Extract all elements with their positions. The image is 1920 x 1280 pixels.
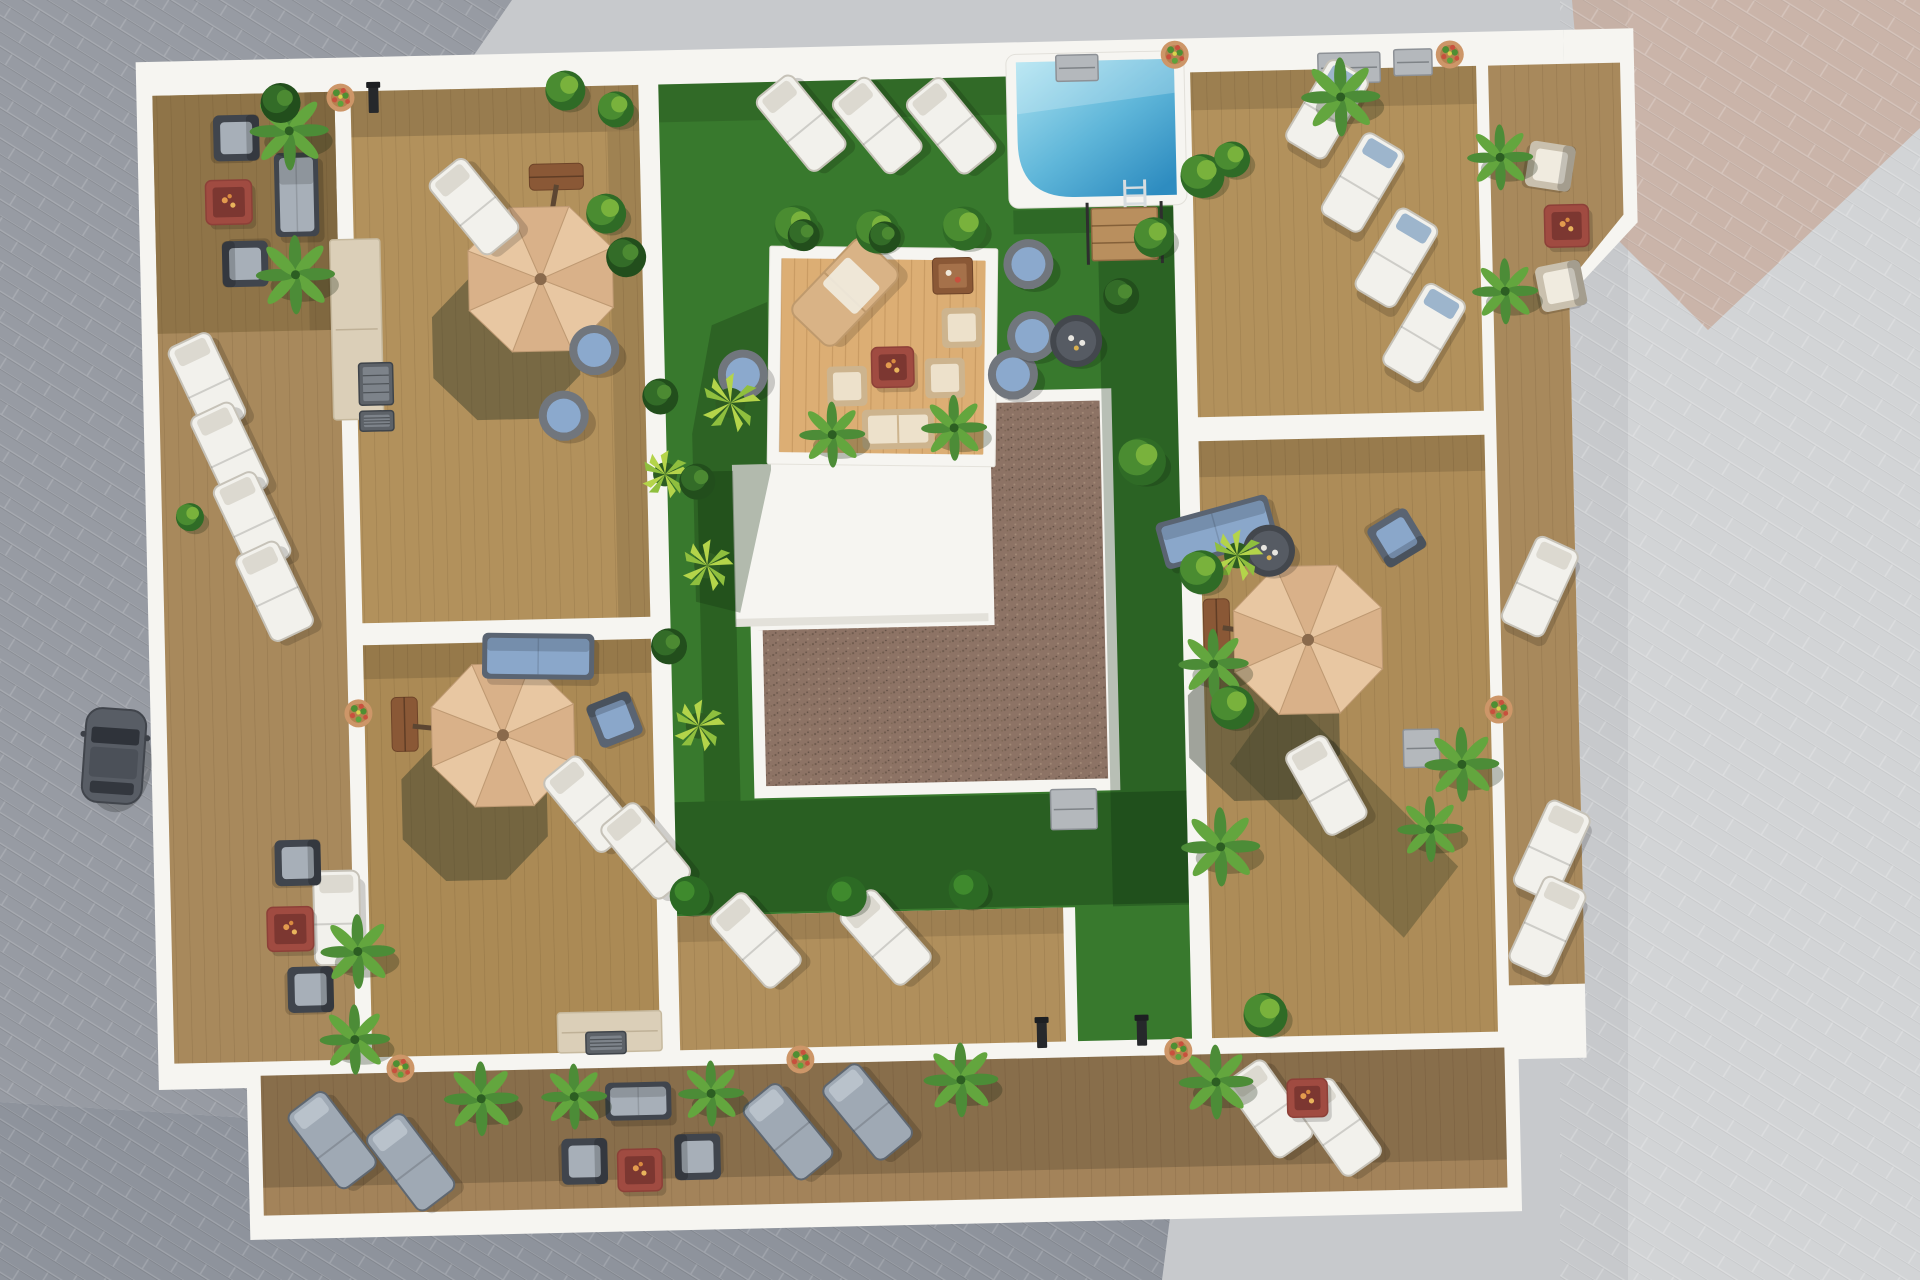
building-layer — [136, 28, 1660, 1242]
core-roof — [732, 459, 989, 627]
armchair — [284, 966, 334, 1015]
grill — [359, 363, 394, 406]
sofa — [605, 1081, 677, 1127]
architectural-render: Aerial 3D rendering of residential rooft… — [0, 0, 1920, 1280]
sofa — [482, 633, 600, 686]
armchair-cream — [925, 358, 966, 399]
armchair — [271, 839, 321, 888]
sofa — [274, 152, 325, 243]
utility-box — [1050, 789, 1097, 830]
roof-unit — [1056, 54, 1099, 81]
fire-table — [205, 180, 256, 230]
fire-table — [1544, 204, 1593, 252]
rooftop-plan-svg: Aerial 3D rendering of residential rooft… — [0, 0, 1920, 1280]
armchair — [558, 1138, 608, 1187]
fire-table — [617, 1149, 666, 1197]
side-table — [932, 257, 973, 294]
fire-table — [1287, 1078, 1332, 1122]
armchair — [674, 1131, 724, 1180]
grill — [586, 1031, 626, 1054]
roof-unit — [1394, 49, 1433, 76]
armchair-cream — [827, 366, 868, 407]
grill — [360, 411, 394, 432]
fire-table — [267, 906, 318, 956]
armchair — [210, 115, 260, 164]
armchair-cream — [941, 307, 982, 348]
fire-table — [871, 347, 918, 393]
